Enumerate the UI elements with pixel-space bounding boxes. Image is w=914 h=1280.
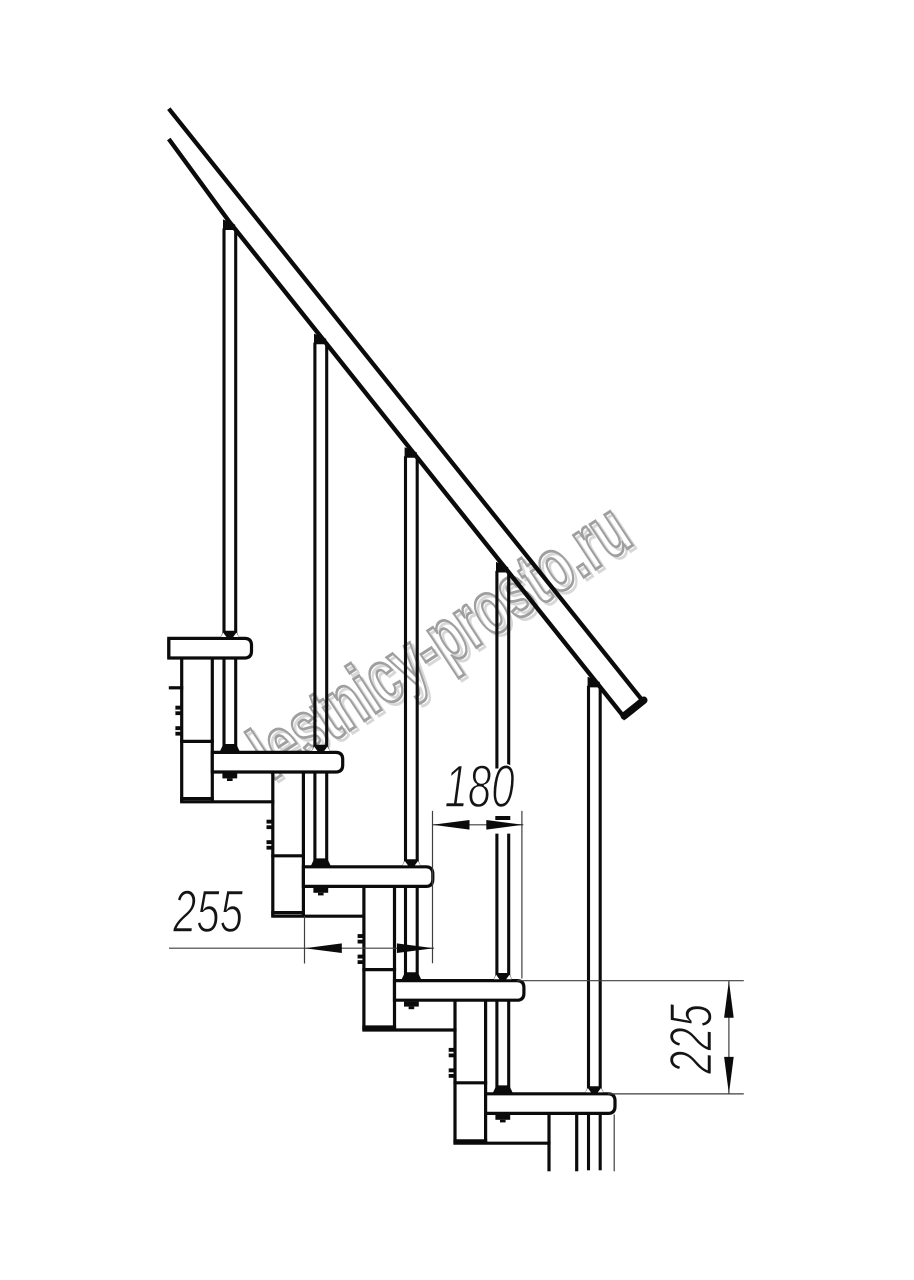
svg-text:255: 255 [172,878,243,945]
svg-text:225: 225 [657,1004,724,1075]
svg-text:180: 180 [445,753,515,820]
